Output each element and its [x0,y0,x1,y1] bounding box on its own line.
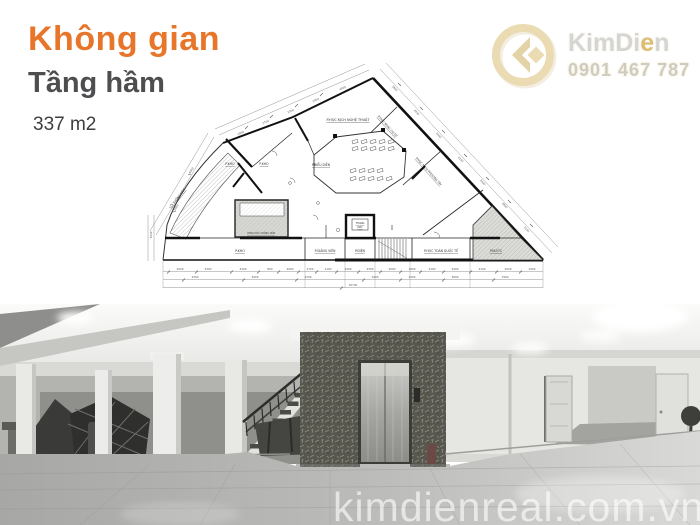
room-label: P.HỌC KỊCH NGHỆ THUẬT [327,117,371,122]
brand-name: KimDien [568,29,690,58]
marble-pillar-left [300,332,360,468]
dim-label: 1700 [307,267,314,271]
basement-floorplan: P.HỌC KỊCH NGHỆ THUẬTP.BIỂU DIỄNP.KHOP.K… [140,61,560,295]
dim-label: 2000 [479,178,487,186]
photo-watermark: kimdienreal.com.vn [333,484,700,525]
dim-label: 2400 [452,267,459,271]
dimension-ticks [167,271,522,290]
dim-label: 2000 [312,97,320,103]
dim-label: 1100 [325,267,332,271]
room-label: P.BIỂU DIỄN [312,162,331,167]
room-label: THANG [356,221,365,225]
page-title: Không gian [28,20,220,59]
dim-label: 2000 [287,267,294,271]
dim-label: 2700 [262,119,270,125]
dim-label: 4000 [188,166,195,174]
dim-label: 4200 [413,108,421,116]
slide: Không gian Tầng hầm 337 m2 KimDien 0901 … [0,0,700,525]
dim-label: 2600 [452,275,459,279]
dim-label: 2000 [389,267,396,271]
dim-label: 2400 [372,275,379,279]
plan-stairs [379,239,406,259]
room-label: P.KHO [235,249,245,253]
dim-label: 2400 [529,267,536,271]
dim-label: 2000 [435,131,443,139]
room-label: P.GIẢNG VIÊN [315,248,336,253]
room-label: VÙNG DỐC XUỐNG HẦM [247,232,275,235]
room-label: P.KHO [225,162,235,166]
room-label: P.ĐIỆN [355,248,366,253]
room-label: P.KHO [259,162,269,166]
dim-label: 32700 [349,283,358,287]
water-room [473,206,543,260]
dim-label: 2300 [205,267,212,271]
dim-label: 2100 [523,225,531,233]
dim-label: 4700 [305,275,312,279]
dim-label: 4100 [240,267,247,271]
room-label: P.HỌC TOÁN QUỐC TẾ [424,247,458,253]
fire-extinguisher [427,444,436,464]
dim-label: 1600 [409,267,416,271]
dim-label: 2300 [192,275,199,279]
dim-label: 2300 [367,267,374,271]
dim-label: 2000 [177,267,184,271]
dim-label: 3940 [149,231,153,238]
dim-label: 800 [267,267,272,271]
dim-label: 4800 [501,201,509,209]
dim-label: 2000 [505,267,512,271]
dim-label: 2100 [429,267,436,271]
dim-label: 2300 [409,275,416,279]
brand-phone: 0901 467 787 [568,60,690,81]
dim-label: 3800 [391,84,399,92]
room-label: P.NƯỚC [490,248,502,253]
dim-label: 2300 [287,108,295,114]
back-room [588,366,656,424]
dim-label: 7900 [502,275,509,279]
door [546,376,572,442]
dim-label: 2100 [479,267,486,271]
dim-label: 2400 [345,267,352,271]
dim-label: 4900 [252,275,259,279]
performance-room [314,128,406,193]
elevator-core [290,328,460,469]
dim-label: 4100 [457,155,465,163]
elevator-call-panel [414,388,420,402]
